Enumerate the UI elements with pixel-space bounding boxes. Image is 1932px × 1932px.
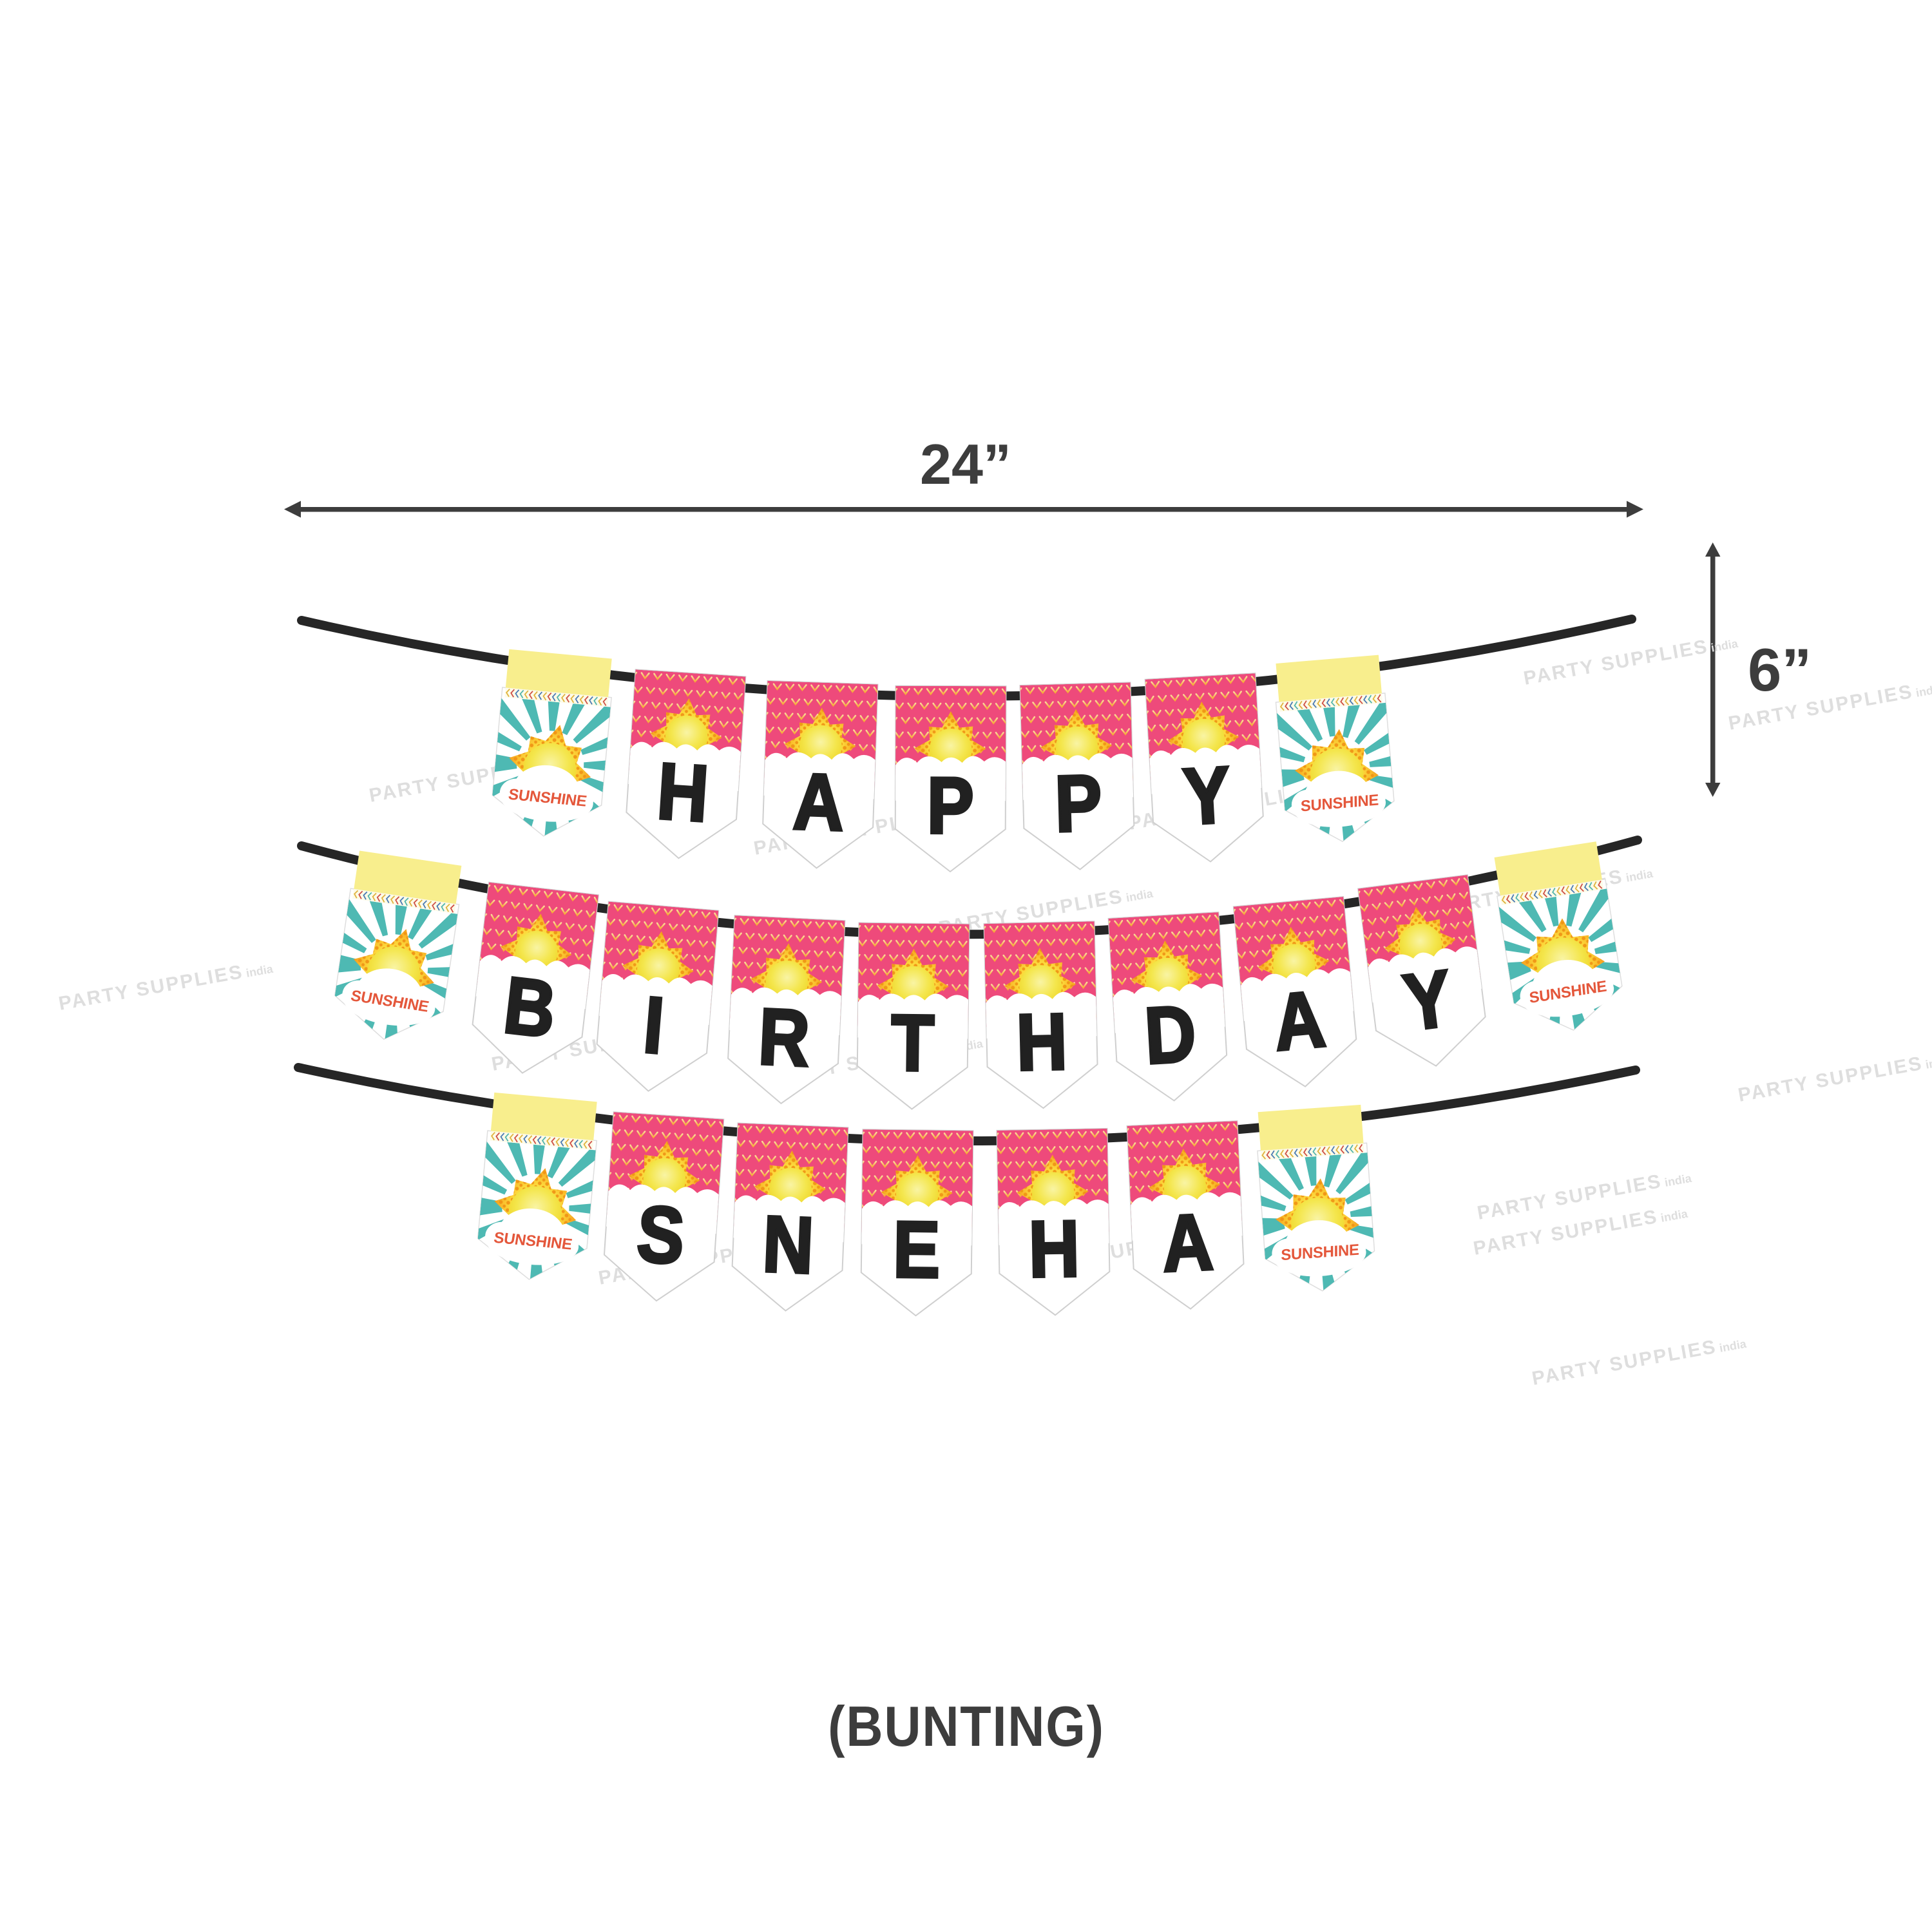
- svg-text:T: T: [891, 998, 935, 1088]
- svg-text:6”: 6”: [1748, 636, 1812, 703]
- svg-text:P: P: [927, 760, 974, 850]
- svg-text:N: N: [761, 1199, 815, 1290]
- svg-text:H: H: [655, 746, 711, 839]
- svg-text:P: P: [1054, 758, 1103, 848]
- svg-text:A: A: [1160, 1197, 1215, 1289]
- svg-text:D: D: [1142, 988, 1198, 1080]
- svg-text:H: H: [1015, 997, 1068, 1087]
- svg-text:A: A: [1270, 973, 1328, 1067]
- svg-text:H: H: [1028, 1203, 1080, 1294]
- svg-text:PARTY SUPPLIESindia: PARTY SUPPLIESindia: [57, 956, 274, 1015]
- svg-text:B: B: [500, 960, 560, 1055]
- svg-text:S: S: [635, 1189, 687, 1281]
- svg-text:R: R: [757, 991, 812, 1084]
- svg-text:A: A: [792, 756, 845, 848]
- svg-text:PARTY SUPPLIESindia: PARTY SUPPLIESindia: [1736, 1047, 1932, 1106]
- svg-text:PARTY SUPPLIESindia: PARTY SUPPLIESindia: [1530, 1331, 1748, 1390]
- svg-text:(BUNTING): (BUNTING): [828, 1694, 1105, 1758]
- svg-text:24”: 24”: [920, 432, 1011, 496]
- svg-text:Y: Y: [1181, 749, 1232, 841]
- svg-text:E: E: [893, 1204, 941, 1294]
